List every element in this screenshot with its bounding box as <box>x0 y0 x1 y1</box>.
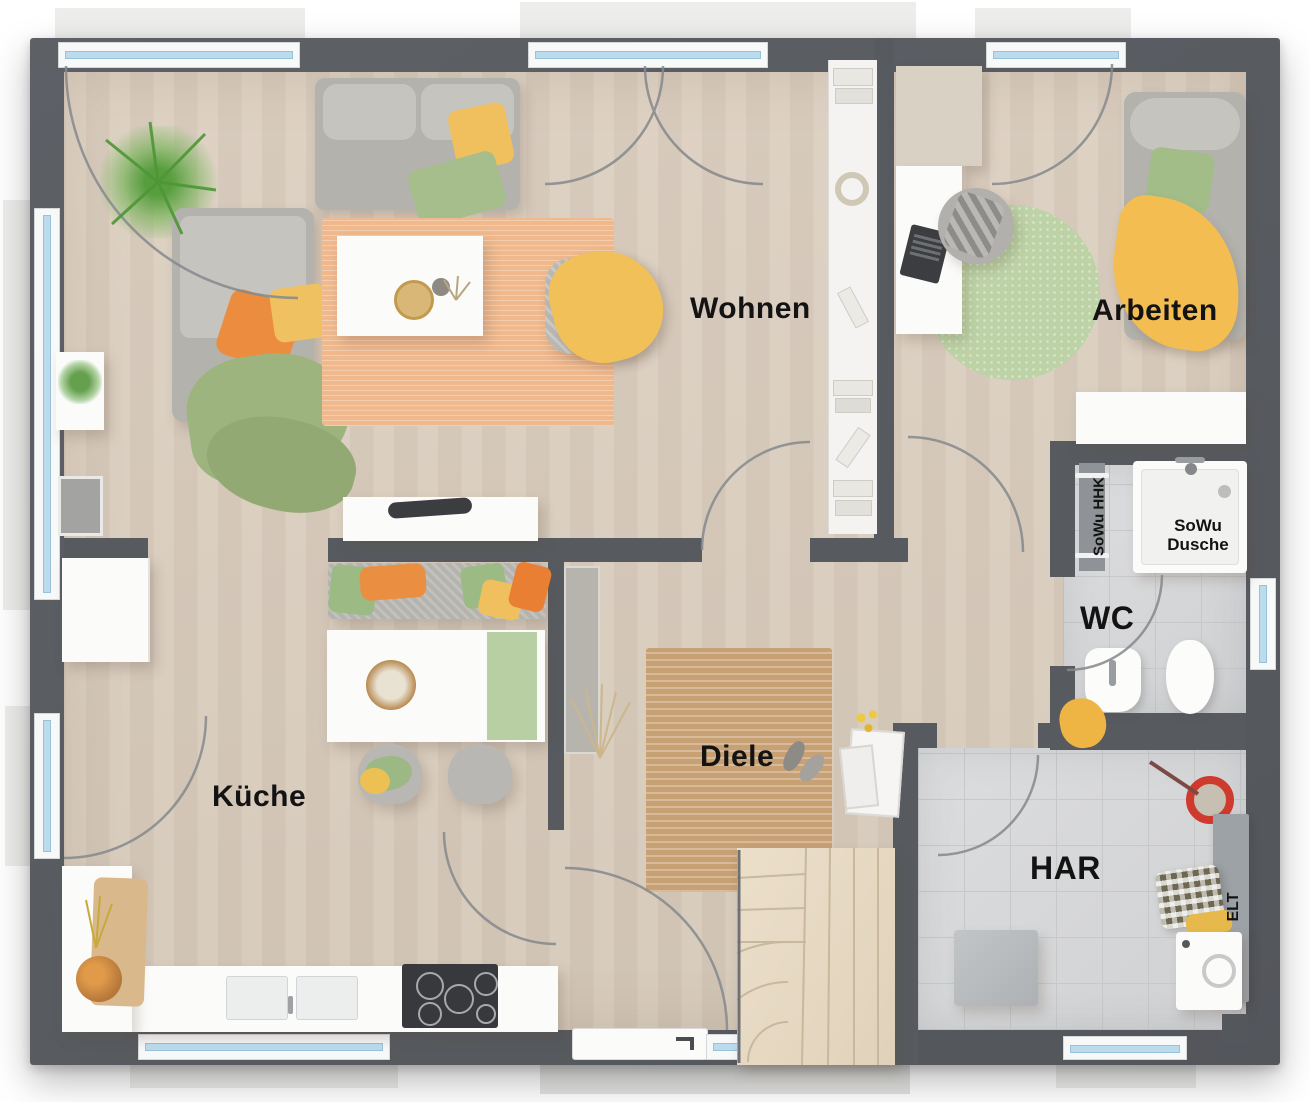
sill-pad-top-right <box>975 8 1131 40</box>
entrance-door-handle-post <box>690 1037 694 1050</box>
storage-cube <box>954 930 1038 1006</box>
fruit-bowl <box>76 956 122 1002</box>
room-label-har: HAR <box>1030 850 1101 887</box>
burner-ring <box>418 1002 442 1026</box>
window-glass <box>993 51 1119 59</box>
wall-kitchen-living <box>328 538 702 562</box>
toilet <box>1166 640 1214 714</box>
sink-basin <box>226 976 288 1020</box>
decor-wreath <box>835 172 869 206</box>
washing-machine <box>1176 932 1242 1010</box>
leaning-mirror-panel <box>564 566 600 754</box>
window-har-bottom <box>1063 1036 1187 1060</box>
sofa-back-cushion <box>323 84 416 140</box>
window-living-top-left <box>58 42 300 68</box>
burner-ring <box>444 984 474 1014</box>
daybed-bolster <box>1130 98 1240 150</box>
cooktop <box>402 964 498 1028</box>
table-centerpiece <box>366 660 416 710</box>
book-stack <box>835 88 873 104</box>
window-glass <box>43 215 51 593</box>
dining-chair <box>448 744 512 804</box>
staircase <box>737 848 895 1065</box>
floor-plan-canvas: Wohnen Arbeiten Küche Diele WC HAR SoWu … <box>0 0 1310 1102</box>
office-sideboard <box>1076 392 1246 444</box>
book-leaning <box>837 286 869 328</box>
shower-head <box>1185 463 1197 475</box>
window-wc-right <box>1250 578 1276 670</box>
book-stack <box>833 480 873 497</box>
book-leaning <box>835 427 870 468</box>
room-label-wc: WC <box>1080 600 1134 637</box>
sill-pad-bottom-left <box>130 1062 398 1088</box>
vase-flowers-yellow <box>852 706 882 740</box>
window-glass <box>1259 585 1267 663</box>
book-stack <box>835 398 871 413</box>
book-stack <box>833 68 873 86</box>
window-arbeiten <box>986 42 1126 68</box>
window-glass <box>43 720 51 852</box>
decor-tray <box>394 280 434 320</box>
burner-ring <box>416 972 444 1000</box>
burner-ring <box>476 1004 496 1024</box>
table-runner-green <box>487 632 537 740</box>
window-glass <box>65 51 293 59</box>
decor-vase <box>432 278 450 296</box>
sink-faucet <box>288 996 293 1014</box>
book-stack <box>833 380 873 396</box>
fridge-cabinet <box>62 558 150 662</box>
shower-drain <box>1218 485 1231 498</box>
window-kitchen-bottom <box>138 1034 390 1060</box>
sill-pad-left-upper <box>3 200 33 610</box>
burner-ring <box>474 972 498 996</box>
window-glass <box>535 51 761 59</box>
washer-drum-door <box>1202 954 1236 988</box>
bench-pillow-orange <box>359 563 427 602</box>
sink-basin <box>296 976 358 1020</box>
wall-wc-left-upper <box>1050 441 1075 577</box>
terrace-pad-top-center <box>520 2 916 40</box>
sink-tap <box>1109 660 1116 686</box>
washer-knob <box>1182 940 1190 948</box>
entrance-door-leaf <box>572 1028 708 1060</box>
window-glass <box>1070 1045 1180 1053</box>
annotation-sowu-hhk: SoWu HHK <box>1091 458 1108 576</box>
window-glass <box>145 1043 383 1051</box>
annotation-sowu-dusche: SoWu Dusche <box>1146 516 1250 554</box>
room-label-wohnen: Wohnen <box>690 292 811 326</box>
office-wardrobe <box>896 66 982 166</box>
potted-plant-small <box>58 360 102 404</box>
wall-corridor-arbeiten <box>874 38 894 562</box>
room-label-diele: Diele <box>700 740 774 774</box>
annotation-elt: ELT <box>1225 877 1243 937</box>
picture-frame-small <box>839 744 879 809</box>
terrace-pad-top-left <box>55 8 305 40</box>
sill-pad-left-lower <box>5 706 33 866</box>
room-label-kueche: Küche <box>212 780 306 814</box>
wall-mirror <box>58 476 103 536</box>
bookshelf <box>828 60 877 534</box>
wall-kitchen-diele <box>548 562 564 830</box>
book-stack <box>835 500 872 516</box>
terrace-door-living <box>528 42 768 68</box>
door-kitchen-left <box>34 713 60 859</box>
floor-shaft <box>1222 1014 1248 1042</box>
room-label-arbeiten: Arbeiten <box>1092 294 1218 328</box>
